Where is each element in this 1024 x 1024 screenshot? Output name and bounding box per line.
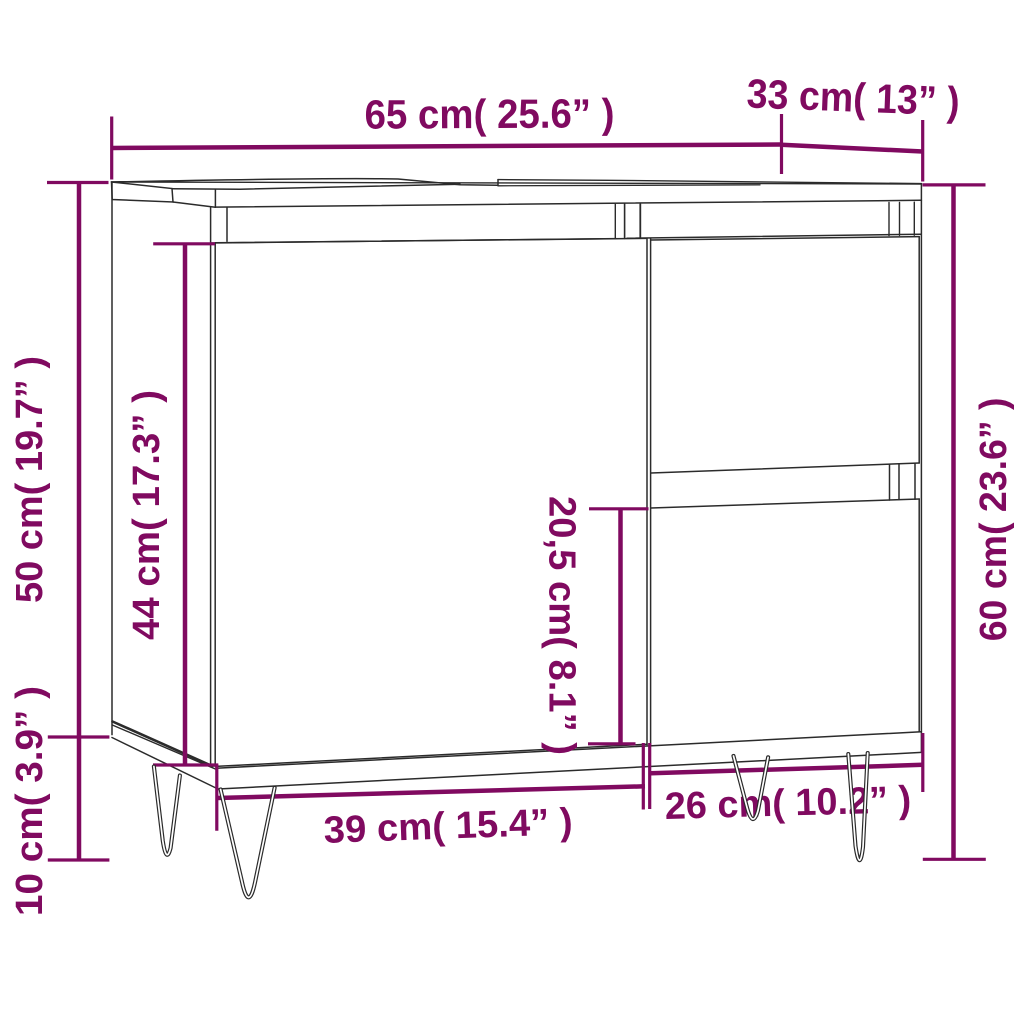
svg-text:26 cm( 10.2” ): 26 cm( 10.2” ) (664, 779, 912, 828)
svg-text:50 cm( 19.7” ): 50 cm( 19.7” ) (9, 356, 51, 603)
svg-text:10 cm( 3.9” ): 10 cm( 3.9” ) (9, 686, 51, 916)
svg-text:65 cm( 25.6” ): 65 cm( 25.6” ) (364, 90, 614, 137)
svg-text:20,5 cm( 8.1” ): 20,5 cm( 8.1” ) (541, 496, 583, 755)
svg-text:44 cm( 17.3” ): 44 cm( 17.3” ) (126, 390, 168, 640)
svg-text:33 cm( 13” ): 33 cm( 13” ) (746, 70, 961, 124)
svg-text:39 cm( 15.4” ): 39 cm( 15.4” ) (323, 801, 573, 852)
svg-text:60 cm( 23.6” ): 60 cm( 23.6” ) (973, 398, 1015, 642)
